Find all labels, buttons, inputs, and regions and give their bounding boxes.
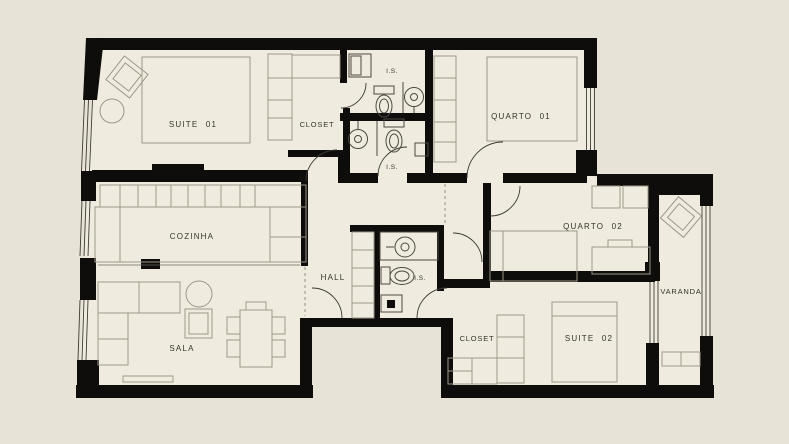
room-label-cozinha: COZINHA <box>170 232 214 241</box>
room-label-hall: HALL <box>321 273 346 282</box>
room-label-sala: SALA <box>169 344 194 353</box>
room-label-is01: I.S. <box>386 68 398 75</box>
room-label-quarto01: QUARTO 01 <box>491 112 551 121</box>
room-label-quarto02: QUARTO 02 <box>563 222 623 231</box>
floor-plan-page: SUITE 01 CLOSET I.S. QUARTO 01 COZINHA I… <box>0 0 789 444</box>
room-label-closet01: CLOSET <box>300 120 335 129</box>
room-label-suite02: SUITE 02 <box>565 334 613 343</box>
room-label-closet02: CLOSET <box>460 334 495 343</box>
room-label-varanda: VARANDA <box>660 287 701 296</box>
floor-plan-drawing: SUITE 01 CLOSET I.S. QUARTO 01 COZINHA I… <box>0 0 789 444</box>
room-label-is03: I.S. <box>414 275 426 282</box>
room-label-suite01: SUITE 01 <box>169 120 217 129</box>
room-label-is02: I.S. <box>386 164 398 171</box>
